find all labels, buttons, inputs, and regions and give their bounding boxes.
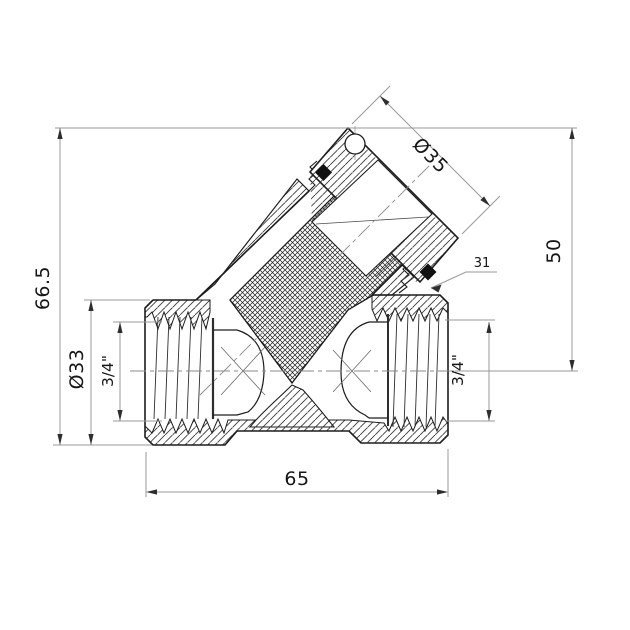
cap-wire-hole	[345, 134, 365, 154]
dim-cap-diameter: Ø35	[408, 134, 452, 178]
dim-total-height: 66.5	[32, 266, 54, 310]
dim-total-length: 65	[284, 468, 309, 490]
technical-drawing-canvas: 66.5 Ø33 3/4" Ø35 50 31 3/4" 65	[0, 0, 630, 630]
dim-branch-height: 50	[543, 238, 565, 263]
dim-left-thread: 3/4"	[99, 355, 117, 387]
dim-outer-diameter: Ø33	[66, 349, 88, 390]
dim-right-thread: 3/4"	[449, 354, 467, 386]
dim-hex-size: 31	[474, 256, 491, 271]
y-strainer-drawing: 66.5 Ø33 3/4" Ø35 50 31 3/4" 65	[0, 0, 630, 630]
